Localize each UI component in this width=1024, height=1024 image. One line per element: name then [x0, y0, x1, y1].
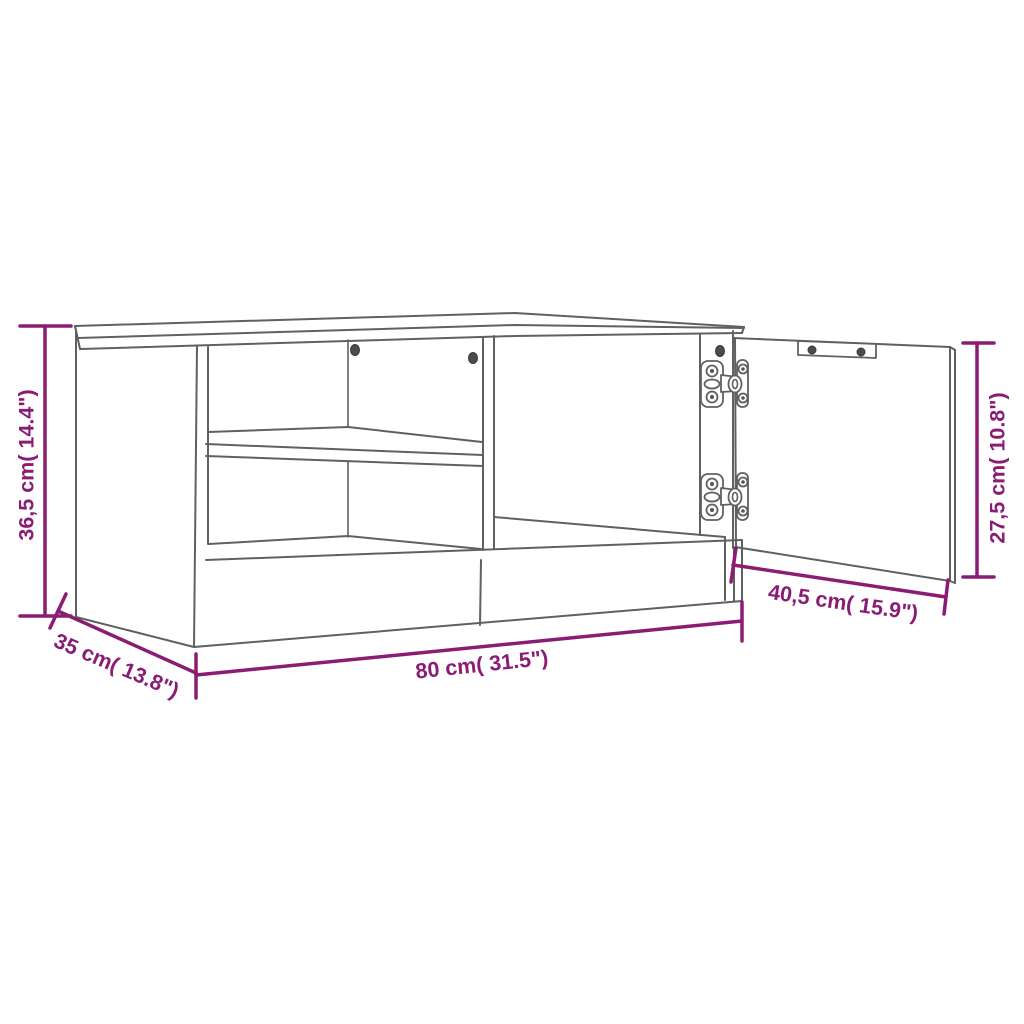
screw-hole-back-left	[351, 345, 360, 356]
door-height-dimension-label: 27,5 cm( 10.8")	[986, 392, 1010, 543]
dimension-depth: 35 cm( 13.8")	[50, 594, 196, 703]
dimension-height: 36,5 cm( 14.4")	[15, 326, 71, 616]
floor-right-back-edge	[494, 517, 725, 537]
depth-left-tick	[50, 594, 66, 628]
door-bottom-edge	[735, 547, 950, 581]
hinge-baseplate-boss	[705, 493, 720, 502]
hinge-bottom	[701, 473, 748, 520]
dimension-width: 80 cm( 31.5")	[196, 602, 742, 698]
door-plate-screw-right	[857, 348, 865, 356]
dimension-door-height: 27,5 cm( 10.8")	[963, 343, 1010, 577]
shelf-back-edge	[208, 427, 482, 442]
cabinet-interior	[206, 336, 725, 550]
base-band-top-edge	[206, 540, 742, 560]
product-dimension-diagram: 36,5 cm( 14.4") 35 cm( 13.8") 80 cm( 31.…	[0, 0, 1024, 1024]
cabinet-door-open	[733, 338, 955, 583]
height-dimension-label: 36,5 cm( 14.4")	[15, 389, 39, 540]
dimension-door-width: 40,5 cm( 15.9")	[731, 548, 948, 625]
hinge-baseplate-screw-top-center	[710, 482, 714, 486]
hinge-baseplate-screw-top-center	[710, 369, 714, 373]
screw-hole-right-wall	[716, 346, 725, 357]
door-width-dimension-label: 40,5 cm( 15.9")	[767, 580, 920, 626]
hinge-knuckle	[729, 376, 742, 393]
hinge-cup-screw-bottom-center	[741, 509, 745, 513]
top-panel-back-edge	[75, 313, 744, 327]
hinge-baseplate-boss	[705, 380, 720, 389]
door-width-right-tick	[944, 580, 948, 614]
hinge-baseplate-screw-bottom-center	[710, 508, 714, 512]
left-panel-front-arris	[194, 346, 197, 647]
floor-left-back-edge	[209, 536, 481, 549]
hinge-top	[701, 360, 748, 407]
shelf-front-arris	[206, 444, 483, 455]
screw-hole-back-right	[469, 353, 478, 364]
hinge-cup-screw-bottom-center	[741, 396, 745, 400]
base-band-bottom-edge	[194, 601, 742, 647]
top-panel-front-arris	[78, 325, 744, 338]
hinge-baseplate-screw-bottom-center	[710, 395, 714, 399]
cabinet-diagram-canvas: 36,5 cm( 14.4") 35 cm( 13.8") 80 cm( 31.…	[0, 0, 1024, 1024]
cabinet-carcass	[75, 313, 744, 647]
door-plate-screw-left	[808, 346, 816, 354]
hinge-cup-screw-top-center	[741, 480, 745, 484]
hinge-knuckle	[729, 489, 742, 506]
hinge-cup-screw-top-center	[741, 367, 745, 371]
door-left-edge	[735, 338, 736, 547]
door-width-left-tick	[731, 548, 736, 582]
shelf-front-bottom-edge	[206, 456, 483, 466]
base-band-center-seam	[480, 560, 481, 625]
